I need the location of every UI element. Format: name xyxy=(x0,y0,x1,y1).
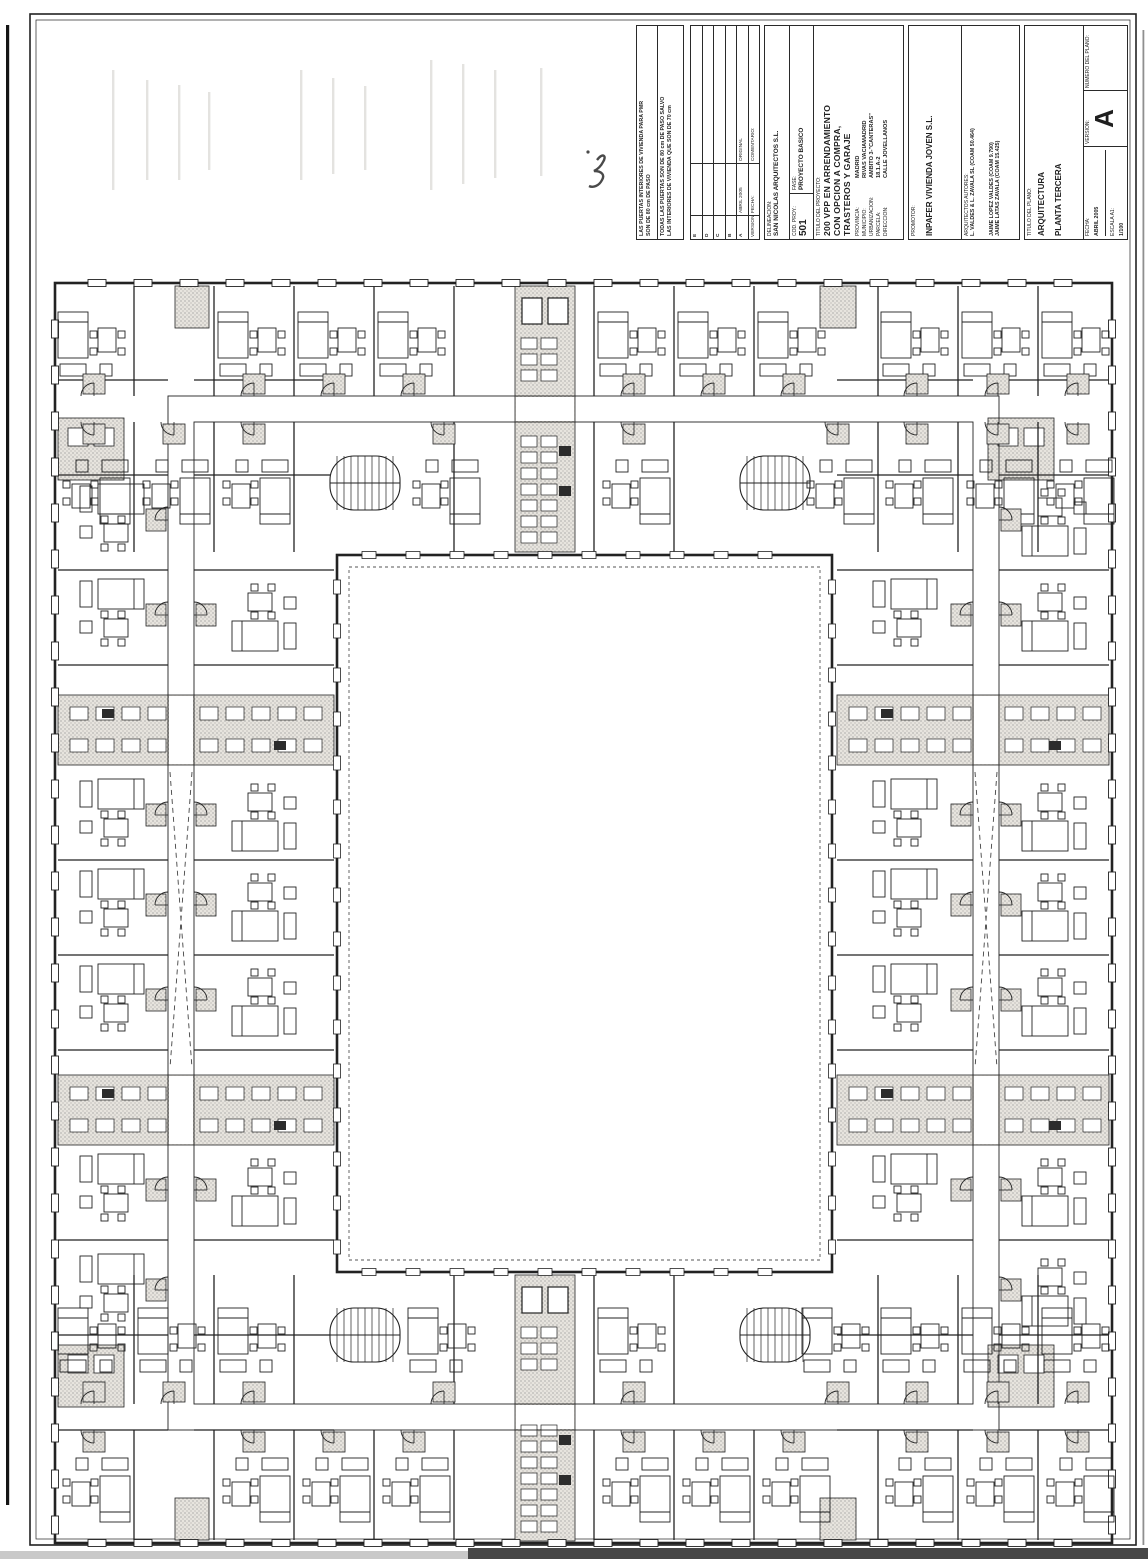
apartment-furniture xyxy=(58,312,125,376)
note-pmr: LAS PUERTAS INTERIORES DE VIVIENDA PARA … xyxy=(636,25,658,240)
provincia-label: PROVINCIA: xyxy=(855,178,862,236)
note-text: LAS INTERIORES DE VIVIENDA QUE SON DE 70… xyxy=(667,29,674,236)
provincia-value: MADRID xyxy=(855,156,862,178)
cod-fase-box: COD. PROY.: 501 FASE: PROYECTO BASICO xyxy=(790,25,814,240)
architects-line: L. VALDES & L. ZAVALA SL (COAM 50.464) xyxy=(970,29,977,236)
bleed-through-text xyxy=(112,60,542,190)
apartment-furniture xyxy=(873,579,937,646)
revision-header-fecha: FECHA: xyxy=(749,163,761,215)
apartment-furniture xyxy=(598,312,665,376)
urbanizacion-value: AMBITO 3-"CANTERAS" xyxy=(869,113,876,178)
sheet-title-floor: PLANTA TERCERA xyxy=(1054,29,1063,236)
escala-label: ESCALA A1: xyxy=(1110,150,1116,236)
apartment-furniture xyxy=(378,312,445,376)
apartment-furniture xyxy=(603,1458,670,1522)
apartment-furniture xyxy=(1022,1259,1086,1326)
apartment-furniture xyxy=(873,869,937,936)
apartment-furniture xyxy=(80,579,144,646)
architects-line: JAIME LOPEZ VALDES (COAM 9.790) xyxy=(989,29,996,236)
architects-line: JAIME LATAS ZAVALA (COAM 15.425) xyxy=(995,29,1002,236)
note-text: TODAS LAS PUERTAS SON DE 80 cm DE PASO S… xyxy=(660,29,667,236)
apartment-furniture xyxy=(886,460,953,524)
municipio-label: MUNICIPIO: xyxy=(862,178,869,236)
apartment-furniture xyxy=(802,1308,869,1372)
apartment-furniture xyxy=(218,1308,285,1372)
apartment-furniture xyxy=(413,460,480,524)
fecha-label: FECHA: xyxy=(1085,150,1091,236)
apartment-furniture xyxy=(1022,584,1086,651)
revision-comentario xyxy=(703,26,714,163)
revision-version: B xyxy=(726,215,737,239)
apartment-furniture xyxy=(232,1159,296,1226)
revision-version: C xyxy=(714,215,725,239)
delineacion-value: SAN NICOLAS ARQUITECTOS S.L. xyxy=(773,29,781,236)
revision-row: D xyxy=(703,26,715,239)
apartment-furniture xyxy=(967,1458,1034,1522)
project-title-line: 200 VPP EN ARRENDAMIENTO xyxy=(822,29,832,236)
revision-fecha: ABRIL 2005 xyxy=(737,163,748,215)
note-text: LAS PUERTAS INTERIORES DE VIVIENDA PARA … xyxy=(639,29,646,236)
apartment-furniture xyxy=(886,1458,953,1522)
apartment-furniture xyxy=(138,1308,205,1372)
apartment-furniture xyxy=(873,779,937,846)
apartment-furniture xyxy=(683,1458,750,1522)
revision-version: A xyxy=(737,215,748,239)
apartment-furniture xyxy=(807,460,874,524)
revision-version: D xyxy=(703,215,714,239)
apartment-furniture xyxy=(80,869,144,936)
project-title-line: TRASTEROS Y GARAJE xyxy=(842,29,852,236)
revision-fecha xyxy=(691,163,702,215)
revision-row: E xyxy=(691,26,703,239)
apartment-furniture xyxy=(63,1458,130,1522)
apartment-furniture xyxy=(763,1458,830,1522)
apartment-furniture xyxy=(303,1458,370,1522)
revision-row: B xyxy=(726,26,738,239)
apartment-furniture xyxy=(873,964,937,1031)
apartment-furniture xyxy=(383,1458,450,1522)
apartment-furniture xyxy=(408,1308,475,1372)
revision-fecha xyxy=(703,163,714,215)
direccion-value: CALLE JOVELLANOS xyxy=(883,120,890,178)
fecha-value: ABRIL 2005 xyxy=(1094,150,1101,236)
project-title-box: TITULO DEL PROYECTO: 200 VPP EN ARRENDAM… xyxy=(814,25,904,240)
title-block: LAS PUERTAS INTERIORES DE VIVIENDA PARA … xyxy=(636,25,1128,240)
revision-table: E D C B xyxy=(690,25,760,240)
apartment-furniture xyxy=(80,1154,144,1221)
revision-comentario xyxy=(726,26,737,163)
apartment-furniture xyxy=(1022,1159,1086,1226)
apartment-furniture xyxy=(80,964,144,1031)
apartment-furniture xyxy=(962,312,1029,376)
escala-value: 1/100 xyxy=(1119,150,1126,236)
architects-box: ARQUITECTOS AUTORES: L. VALDES & L. ZAVA… xyxy=(962,25,1020,240)
apartment-furniture xyxy=(598,1308,665,1372)
revision-comentario: ORIGINAL xyxy=(737,26,748,163)
direccion-label: DIRECCION: xyxy=(883,178,890,236)
parcela-label: PARCELA: xyxy=(876,178,883,236)
revision-fecha xyxy=(726,163,737,215)
apartment-furniture xyxy=(1042,312,1109,376)
revision-comentario xyxy=(691,26,702,163)
urbanizacion-label: URBANIZACION: xyxy=(869,178,876,236)
apartment-furniture xyxy=(1022,969,1086,1036)
fase-value: PROYECTO BASICO xyxy=(798,29,806,190)
apartment-furniture xyxy=(603,460,670,524)
revision-header-version: VERSION: xyxy=(749,215,761,239)
promotor-value: INPAFER VIVIENDA JOVEN S.L. xyxy=(925,29,934,236)
apartment-furniture xyxy=(223,460,290,524)
revision-comentario xyxy=(714,26,725,163)
revision-version: E xyxy=(691,215,702,239)
apartment-furniture xyxy=(232,584,296,651)
apartment-furniture xyxy=(881,1308,948,1372)
apartment-furniture xyxy=(873,1154,937,1221)
apartment-furniture xyxy=(758,312,825,376)
delineacion-box: DELINEACION: SAN NICOLAS ARQUITECTOS S.L… xyxy=(764,25,790,240)
apartment-furniture xyxy=(1022,874,1086,941)
revision-row: A ABRIL 2005 ORIGINAL xyxy=(737,26,749,239)
note-doors: TODAS LAS PUERTAS SON DE 80 cm DE PASO S… xyxy=(658,25,684,240)
revision-header-row: VERSION: FECHA: COMENTARIO: xyxy=(749,26,761,239)
numero-plano-label: NUMERO DEL PLANO: xyxy=(1085,28,1091,88)
apartment-furniture xyxy=(218,312,285,376)
project-title-line: CON OPCION A COMPRA, xyxy=(832,29,842,236)
apartment-furniture xyxy=(1022,784,1086,851)
date-scale-version-box: FECHA: ABRIL 2005 ESCALA A1: 1/100 VERSI… xyxy=(1084,25,1128,240)
revision-fecha xyxy=(714,163,725,215)
promotor-box: PROMOTOR: INPAFER VIVIENDA JOVEN S.L. xyxy=(908,25,962,240)
title-block-rotated: LAS PUERTAS INTERIORES DE VIVIENDA PARA … xyxy=(636,25,1128,240)
apartment-furniture xyxy=(298,312,365,376)
apartment-furniture xyxy=(678,312,745,376)
apartment-furniture xyxy=(80,779,144,846)
revision-row: C xyxy=(714,26,726,239)
cod-proy-value: 501 xyxy=(798,197,809,236)
municipio-value: RIVAS VACIAMADRID xyxy=(862,120,869,178)
apartment-furniture xyxy=(223,1458,290,1522)
parcela-value: 18.1.A-2 xyxy=(876,157,883,178)
drawing-sheet: LAS PUERTAS INTERIORES DE VIVIENDA PARA … xyxy=(0,0,1148,1559)
apartment-furniture xyxy=(232,784,296,851)
apartment-furniture xyxy=(232,874,296,941)
version-value: A xyxy=(1091,109,1117,128)
apartment-furniture xyxy=(1047,1458,1114,1522)
note-text: SON DE 80 cm DE PASO xyxy=(646,29,653,236)
apartment-furniture xyxy=(232,969,296,1036)
revision-header-comentario: COMENTARIO: xyxy=(749,26,761,163)
apartment-furniture xyxy=(881,312,948,376)
sheet-title-discipline: ARQUITECTURA xyxy=(1037,29,1046,236)
sheet-title-box: TITULO DEL PLANO: ARQUITECTURA PLANTA TE… xyxy=(1024,25,1084,240)
